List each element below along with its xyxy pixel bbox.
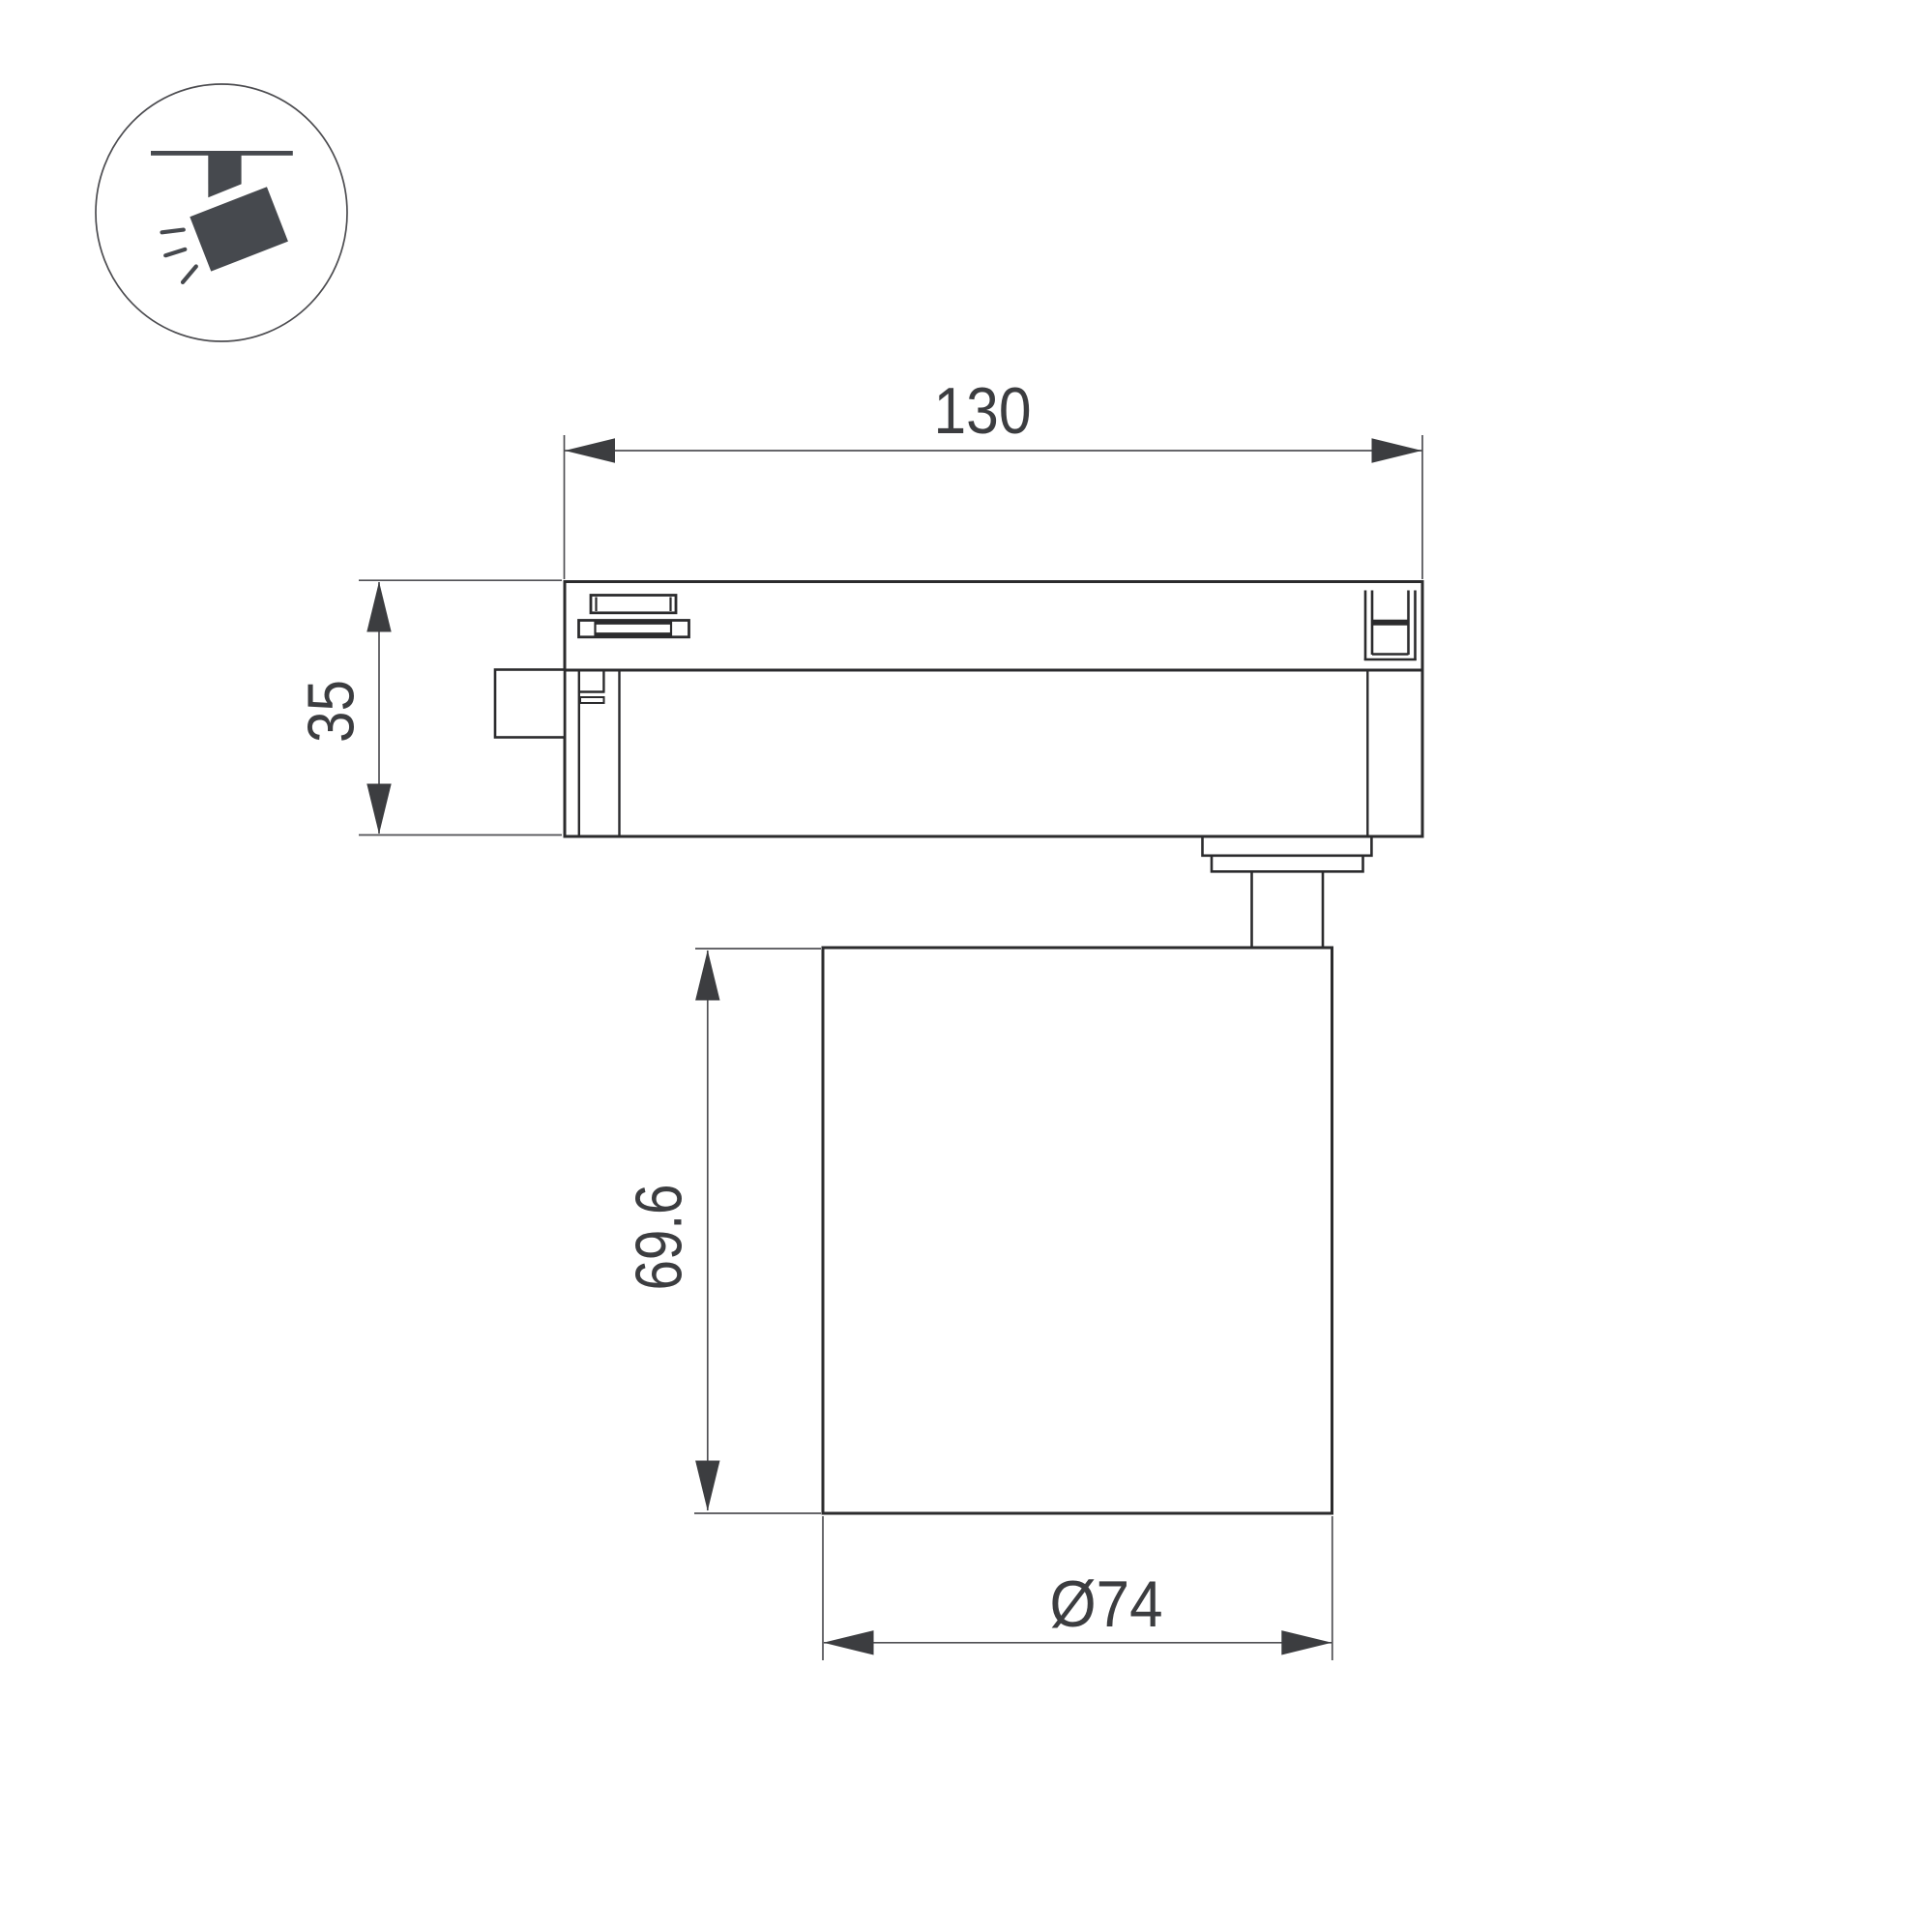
svg-text:130: 130: [934, 374, 1032, 448]
svg-text:Ø74: Ø74: [1050, 1567, 1163, 1641]
svg-text:69.6: 69.6: [623, 1185, 696, 1291]
svg-text:35: 35: [294, 680, 367, 743]
